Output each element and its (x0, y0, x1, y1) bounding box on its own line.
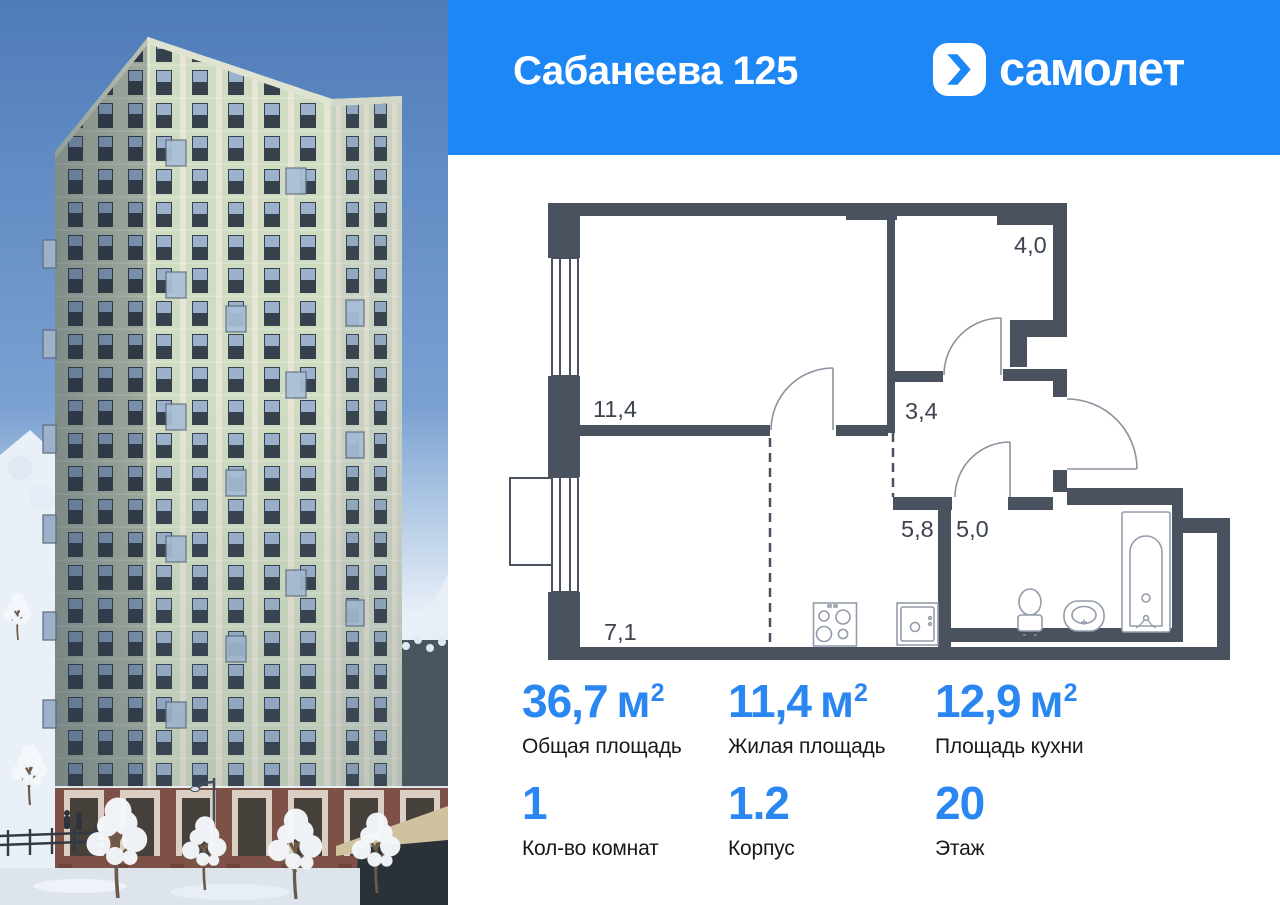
arrow-chevron-icon (933, 43, 986, 96)
stat-living-area-label: Жилая площадь (728, 735, 934, 759)
brand-name: самолет (999, 42, 1184, 95)
toilet-icon (1018, 589, 1042, 635)
stat-kitchen-area: 12,9м2 Площадь кухни (935, 678, 1141, 759)
stat-kitchen-area-value: 12,9м2 (935, 678, 1141, 724)
stat-living-area-value: 11,4м2 (728, 678, 934, 724)
stat-living-area: 11,4м2 Жилая площадь (728, 678, 934, 759)
header-bar: Сабанеева 125 самолет (448, 0, 1280, 155)
room-area-bathroom: 5,0 (956, 516, 989, 542)
stat-building-value: 1.2 (728, 780, 934, 826)
brand-logo-icon (933, 43, 986, 96)
apartment-tower (43, 37, 402, 790)
room-area-hall-upper: 4,0 (1014, 232, 1047, 258)
bathtub-icon (1122, 512, 1170, 632)
stat-total-area: 36,7м2 Общая площадь (522, 678, 728, 759)
floor-plan: 11,4 4,0 3,4 5,8 5,0 7,1 (500, 195, 1245, 665)
stat-kitchen-area-label: Площадь кухни (935, 735, 1141, 759)
listing-card: Сабанеева 125 самолет (0, 0, 1280, 905)
kitchen-stove-icon (814, 603, 857, 646)
page-title: Сабанеева 125 (513, 49, 798, 94)
stat-rooms-label: Кол-во комнат (522, 837, 728, 861)
stat-floor-value: 20 (935, 780, 1141, 826)
stat-rooms-value: 1 (522, 780, 728, 826)
doors (771, 318, 1137, 497)
room-area-hall: 3,4 (905, 398, 938, 424)
stat-rooms: 1 Кол-во комнат (522, 780, 728, 861)
room-area-kitchen-right: 5,8 (901, 516, 934, 542)
stat-total-area-value: 36,7м2 (522, 678, 728, 724)
stat-total-area-label: Общая площадь (522, 735, 728, 759)
stat-floor-label: Этаж (935, 837, 1141, 861)
sink-icon (1064, 601, 1104, 631)
brand-logo: самолет (933, 43, 1184, 96)
room-area-kitchen-left: 7,1 (604, 619, 637, 645)
stat-floor: 20 Этаж (935, 780, 1141, 861)
stat-building-label: Корпус (728, 837, 934, 861)
room-area-living: 11,4 (593, 396, 637, 422)
room-area-labels: 11,4 4,0 3,4 5,8 5,0 7,1 (593, 232, 1047, 645)
stat-building: 1.2 Корпус (728, 780, 934, 861)
dishwasher-icon (897, 603, 938, 645)
building-photo (0, 0, 448, 905)
